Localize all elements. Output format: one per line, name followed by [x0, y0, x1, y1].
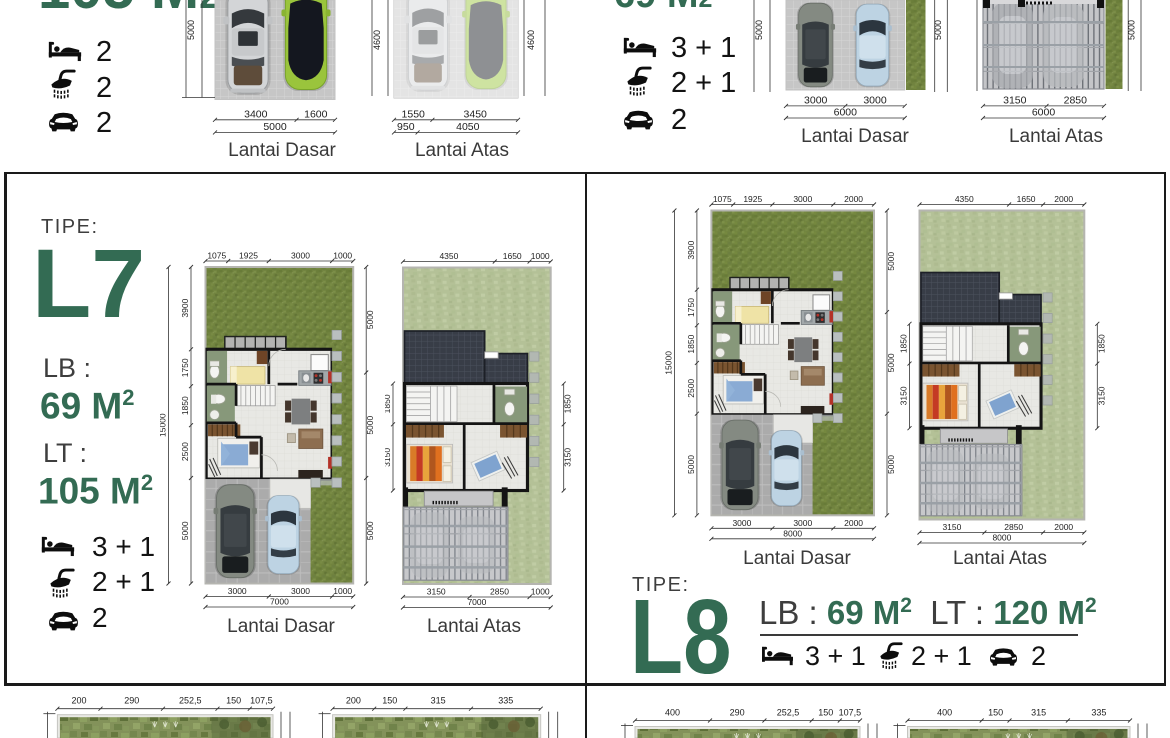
- svg-text:3450: 3450: [464, 108, 488, 120]
- svg-text:3150: 3150: [563, 448, 573, 467]
- svg-text:2500: 2500: [180, 442, 190, 461]
- svg-text:3000: 3000: [793, 518, 812, 528]
- svg-text:8000: 8000: [992, 533, 1011, 543]
- svg-text:6000: 6000: [1032, 107, 1056, 119]
- svg-text:3000: 3000: [863, 94, 887, 106]
- svg-text:3150: 3150: [427, 587, 446, 597]
- svg-text:5000: 5000: [365, 521, 375, 540]
- svg-text:4350: 4350: [955, 194, 974, 204]
- svg-text:1650: 1650: [1017, 194, 1036, 204]
- svg-text:5000: 5000: [754, 20, 764, 40]
- svg-text:3000: 3000: [793, 194, 812, 204]
- svg-text:4350: 4350: [439, 251, 458, 261]
- svg-text:335: 335: [498, 696, 513, 706]
- svg-text:2000: 2000: [1054, 194, 1073, 204]
- svg-text:7000: 7000: [270, 597, 289, 607]
- svg-text:315: 315: [1031, 708, 1046, 718]
- svg-text:315: 315: [431, 696, 446, 706]
- svg-text:3900: 3900: [180, 298, 190, 317]
- svg-text:3150: 3150: [899, 386, 909, 405]
- svg-text:150: 150: [382, 696, 397, 706]
- svg-text:1000: 1000: [333, 251, 352, 261]
- svg-text:252,5: 252,5: [777, 708, 800, 718]
- svg-text:3150: 3150: [1003, 94, 1027, 106]
- svg-text:252,5: 252,5: [179, 696, 202, 706]
- svg-text:335: 335: [1091, 708, 1106, 718]
- svg-text:3000: 3000: [732, 518, 751, 528]
- svg-text:5000: 5000: [365, 415, 375, 434]
- svg-text:290: 290: [730, 708, 745, 718]
- svg-text:200: 200: [346, 696, 361, 706]
- svg-text:1000: 1000: [531, 251, 550, 261]
- svg-text:4600: 4600: [526, 30, 536, 50]
- svg-text:15000: 15000: [160, 413, 168, 437]
- svg-text:5000: 5000: [186, 20, 196, 40]
- svg-text:950: 950: [397, 121, 415, 133]
- svg-text:2850: 2850: [1004, 522, 1023, 532]
- svg-text:5000: 5000: [686, 455, 696, 474]
- svg-text:400: 400: [937, 708, 952, 718]
- svg-text:5000: 5000: [1127, 20, 1137, 40]
- svg-text:400: 400: [665, 708, 680, 718]
- svg-text:1850: 1850: [563, 394, 573, 413]
- svg-text:1075: 1075: [207, 251, 226, 261]
- svg-text:3150: 3150: [385, 448, 392, 467]
- svg-text:4600: 4600: [372, 30, 382, 50]
- svg-text:1650: 1650: [503, 251, 522, 261]
- svg-text:5000: 5000: [933, 20, 943, 40]
- svg-text:1850: 1850: [385, 394, 392, 413]
- svg-text:1850: 1850: [180, 396, 190, 415]
- svg-text:290: 290: [124, 696, 139, 706]
- svg-text:150: 150: [818, 708, 833, 718]
- svg-text:150: 150: [226, 696, 241, 706]
- svg-text:1750: 1750: [180, 358, 190, 377]
- svg-text:1925: 1925: [239, 251, 258, 261]
- svg-text:3000: 3000: [291, 251, 310, 261]
- svg-text:3000: 3000: [228, 586, 247, 596]
- svg-text:2000: 2000: [1054, 522, 1073, 532]
- svg-text:1850: 1850: [899, 334, 909, 353]
- svg-text:7000: 7000: [467, 597, 486, 607]
- svg-text:1750: 1750: [686, 298, 696, 317]
- svg-text:1000: 1000: [531, 587, 550, 597]
- svg-text:3900: 3900: [686, 240, 696, 259]
- svg-text:200: 200: [71, 696, 86, 706]
- svg-text:1850: 1850: [1096, 334, 1106, 353]
- svg-text:3000: 3000: [291, 586, 310, 596]
- svg-text:2500: 2500: [686, 379, 696, 398]
- svg-text:1000: 1000: [333, 586, 352, 596]
- svg-text:150: 150: [988, 708, 1003, 718]
- svg-text:2850: 2850: [1064, 94, 1088, 106]
- svg-text:107,5: 107,5: [250, 696, 273, 706]
- svg-text:5000: 5000: [263, 121, 287, 133]
- svg-text:1600: 1600: [304, 108, 328, 120]
- svg-text:2000: 2000: [844, 518, 863, 528]
- svg-text:1550: 1550: [402, 108, 426, 120]
- svg-text:2000: 2000: [844, 194, 863, 204]
- svg-text:5000: 5000: [180, 521, 190, 540]
- svg-text:3000: 3000: [804, 94, 828, 106]
- svg-text:3400: 3400: [244, 108, 268, 120]
- svg-text:3150: 3150: [942, 522, 961, 532]
- svg-text:107,5: 107,5: [839, 708, 862, 718]
- svg-text:4050: 4050: [456, 121, 480, 133]
- svg-text:1925: 1925: [743, 194, 762, 204]
- svg-text:1075: 1075: [713, 194, 732, 204]
- svg-text:15000: 15000: [665, 351, 673, 375]
- svg-text:6000: 6000: [834, 107, 858, 119]
- svg-text:3150: 3150: [1096, 386, 1106, 405]
- svg-text:2850: 2850: [490, 587, 509, 597]
- svg-text:8000: 8000: [783, 528, 802, 538]
- svg-text:5000: 5000: [365, 310, 375, 329]
- svg-text:1850: 1850: [686, 334, 696, 353]
